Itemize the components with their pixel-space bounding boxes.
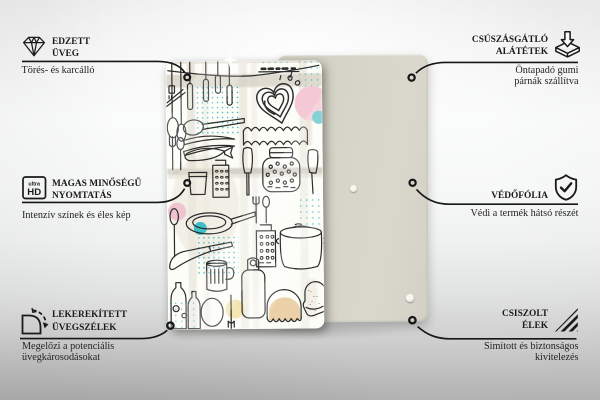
svg-text:HD: HD (27, 187, 41, 198)
